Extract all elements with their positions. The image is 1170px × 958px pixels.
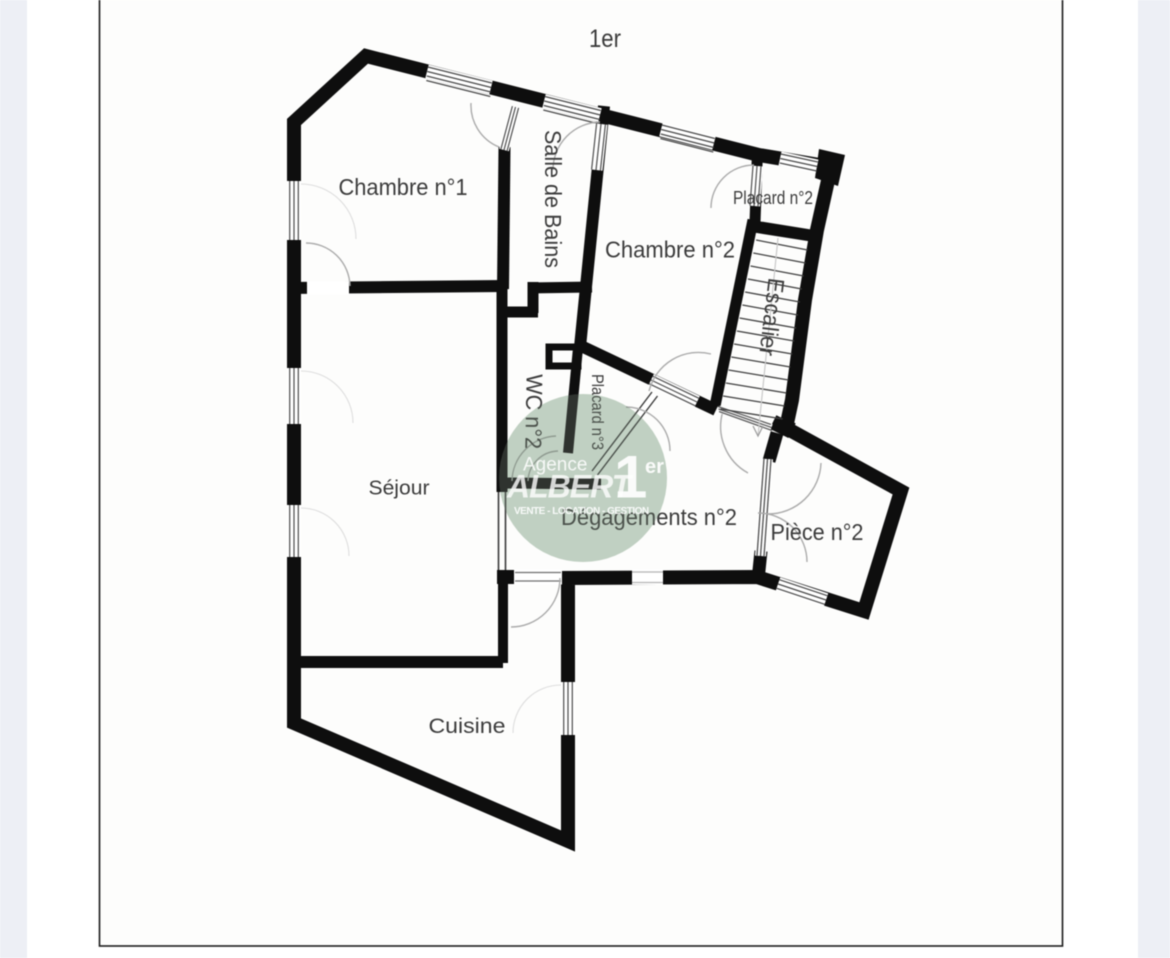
svg-text:Chambre n°1: Chambre n°1 <box>339 174 468 200</box>
svg-text:er: er <box>645 456 664 478</box>
svg-text:Séjour: Séjour <box>369 478 430 500</box>
svg-text:1: 1 <box>614 444 647 511</box>
svg-text:Chambre n°2: Chambre n°2 <box>605 237 735 263</box>
svg-text:Salle de Bains: Salle de Bains <box>540 130 566 268</box>
svg-text:Pièce n°2: Pièce n°2 <box>771 519 864 545</box>
svg-text:Cuisine: Cuisine <box>429 715 506 738</box>
svg-text:1er: 1er <box>589 25 621 53</box>
svg-text:Placard n°2: Placard n°2 <box>733 188 813 208</box>
svg-text:VENTE - LOCATION - GESTION: VENTE - LOCATION - GESTION <box>514 506 649 517</box>
